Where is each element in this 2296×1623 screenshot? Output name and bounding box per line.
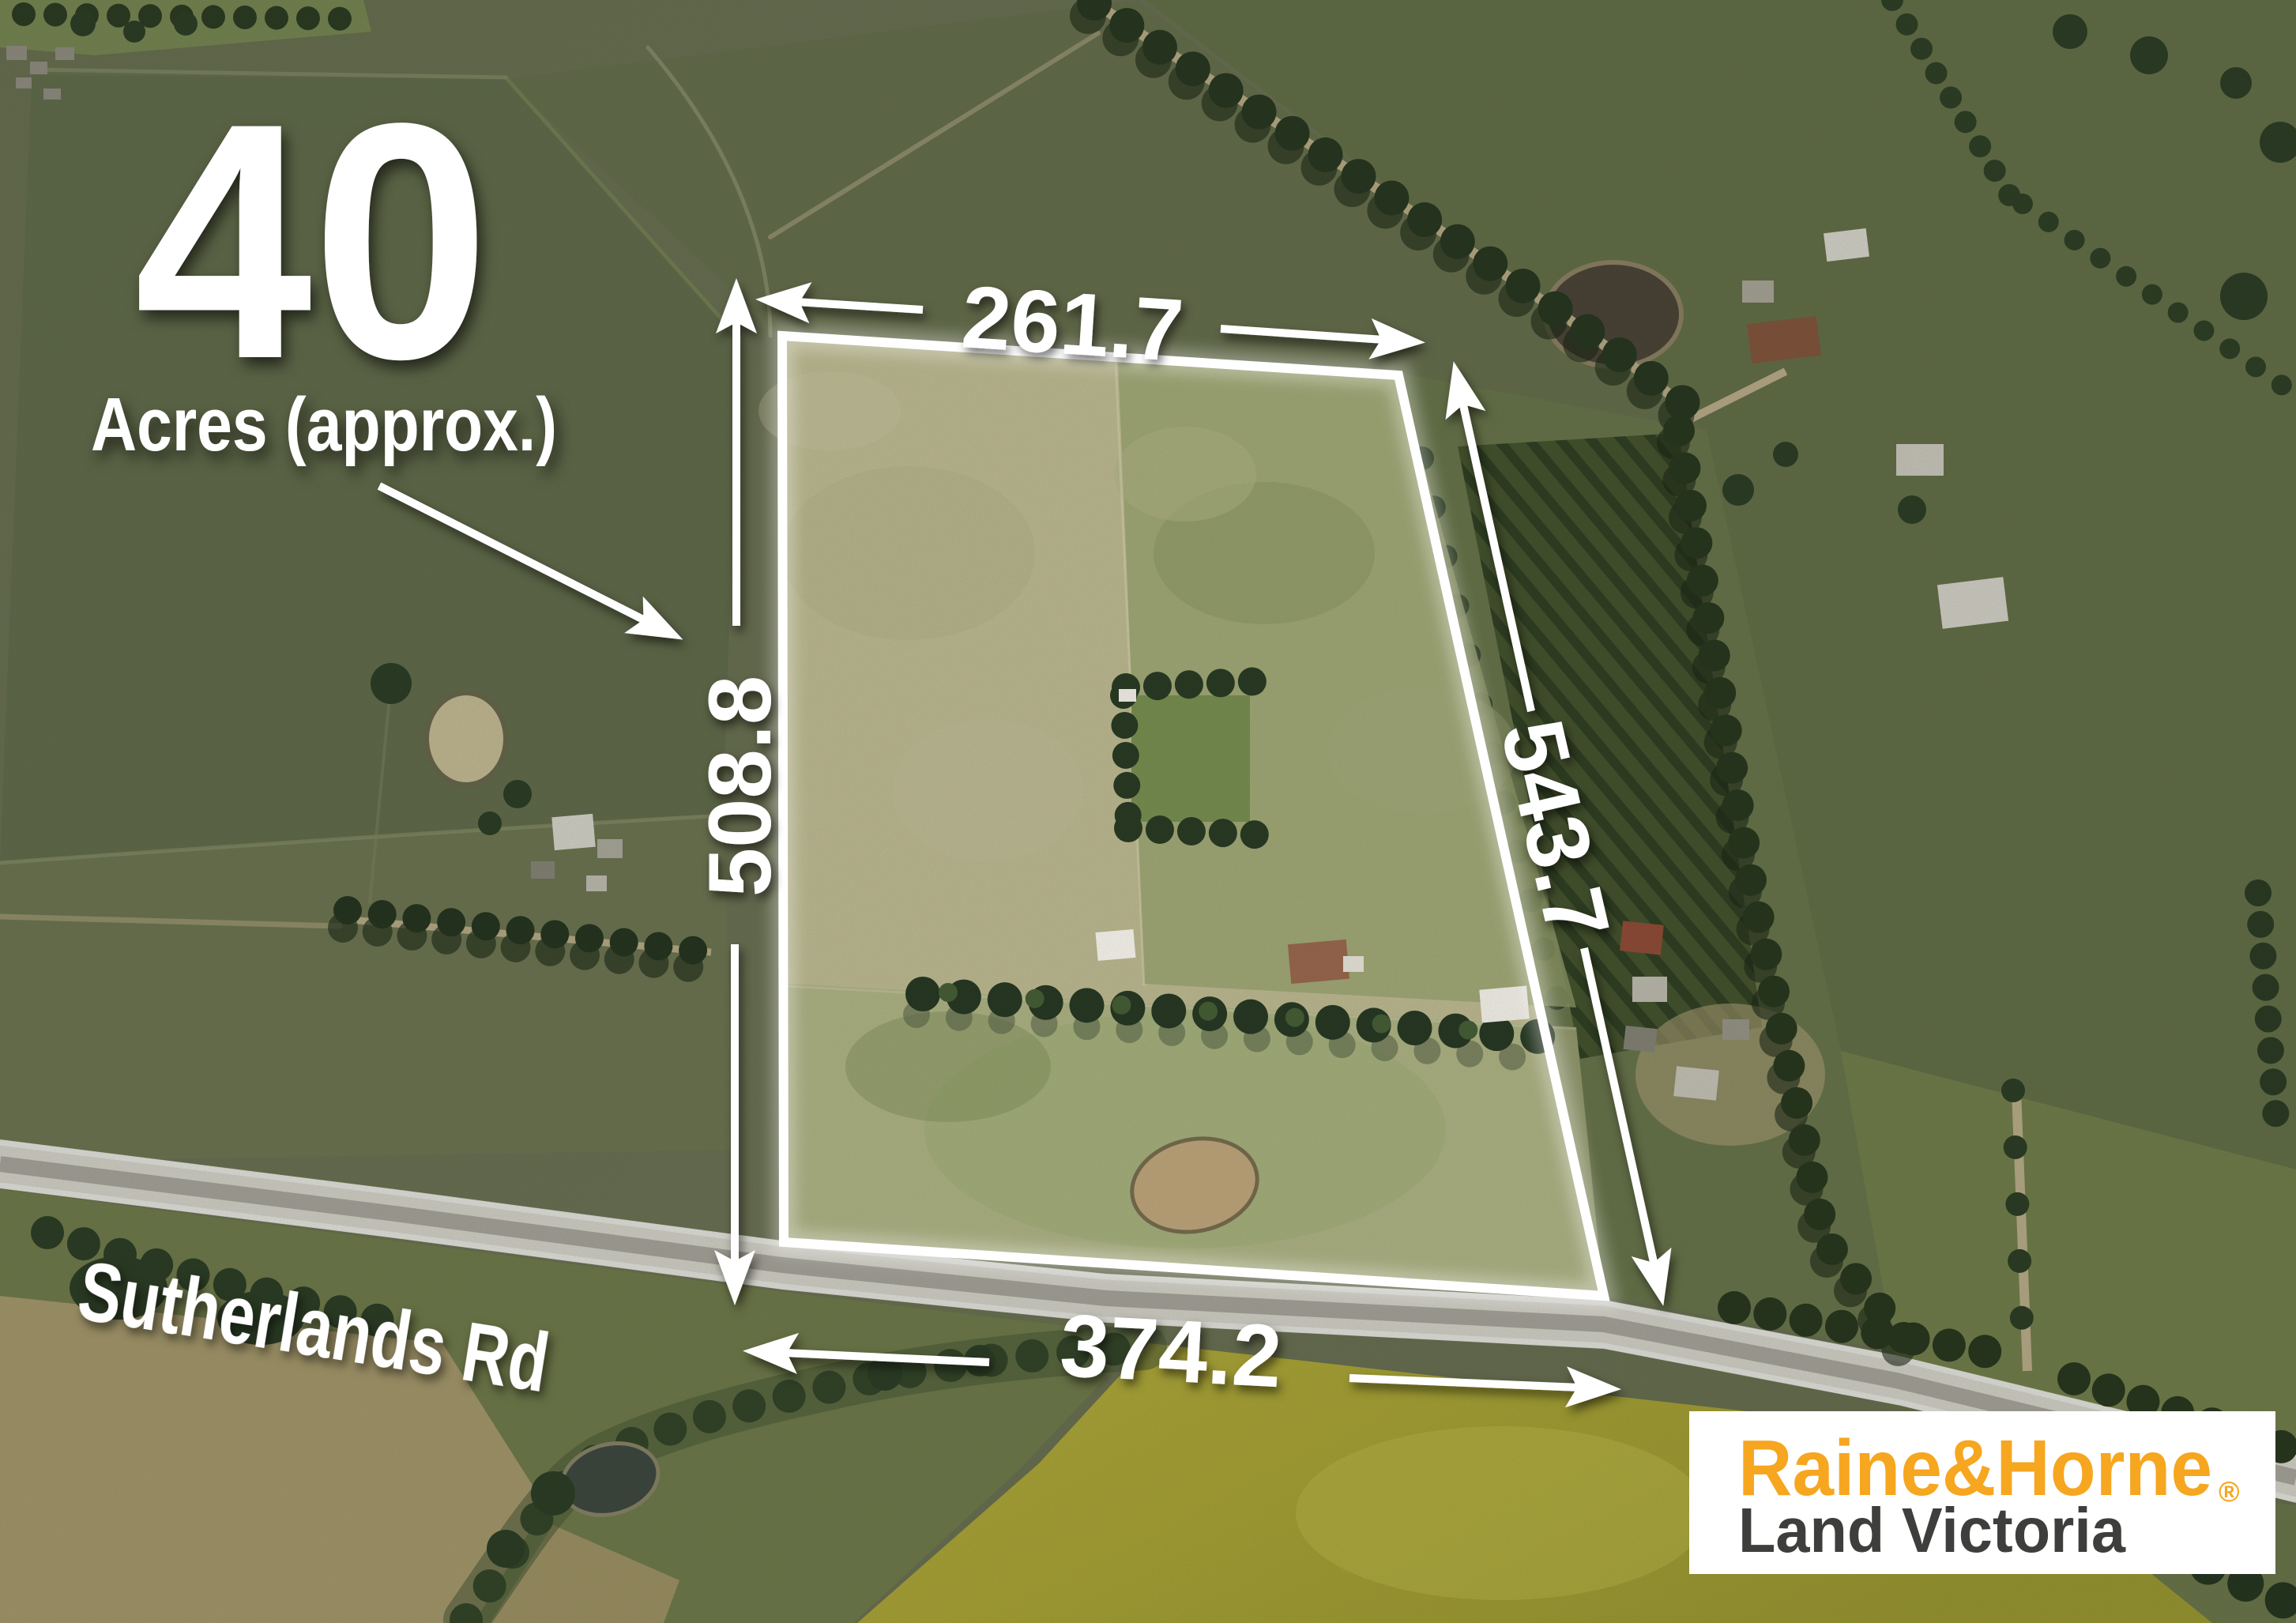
dimension-left-label: 508.8 bbox=[691, 676, 789, 897]
headline-number: 40 bbox=[134, 54, 490, 429]
logo-registered-mark: ® bbox=[2219, 1475, 2240, 1508]
aerial-map: 261.7 508.8 543.7 374.2 Sutherlands Rd 4… bbox=[0, 0, 2296, 1623]
dimension-bottom-label: 374.2 bbox=[1058, 1296, 1284, 1406]
aerial-photo-canvas: 261.7 508.8 543.7 374.2 Sutherlands Rd 4… bbox=[0, 0, 2296, 1623]
headline-label: Acres (approx.) bbox=[91, 382, 557, 467]
headline: 40 Acres (approx.) bbox=[91, 54, 557, 467]
dimension-top-label: 261.7 bbox=[959, 267, 1187, 380]
agency-logo: Raine&Horne ® Land Victoria bbox=[1689, 1411, 2275, 1574]
logo-division: Land Victoria bbox=[1738, 1495, 2125, 1565]
